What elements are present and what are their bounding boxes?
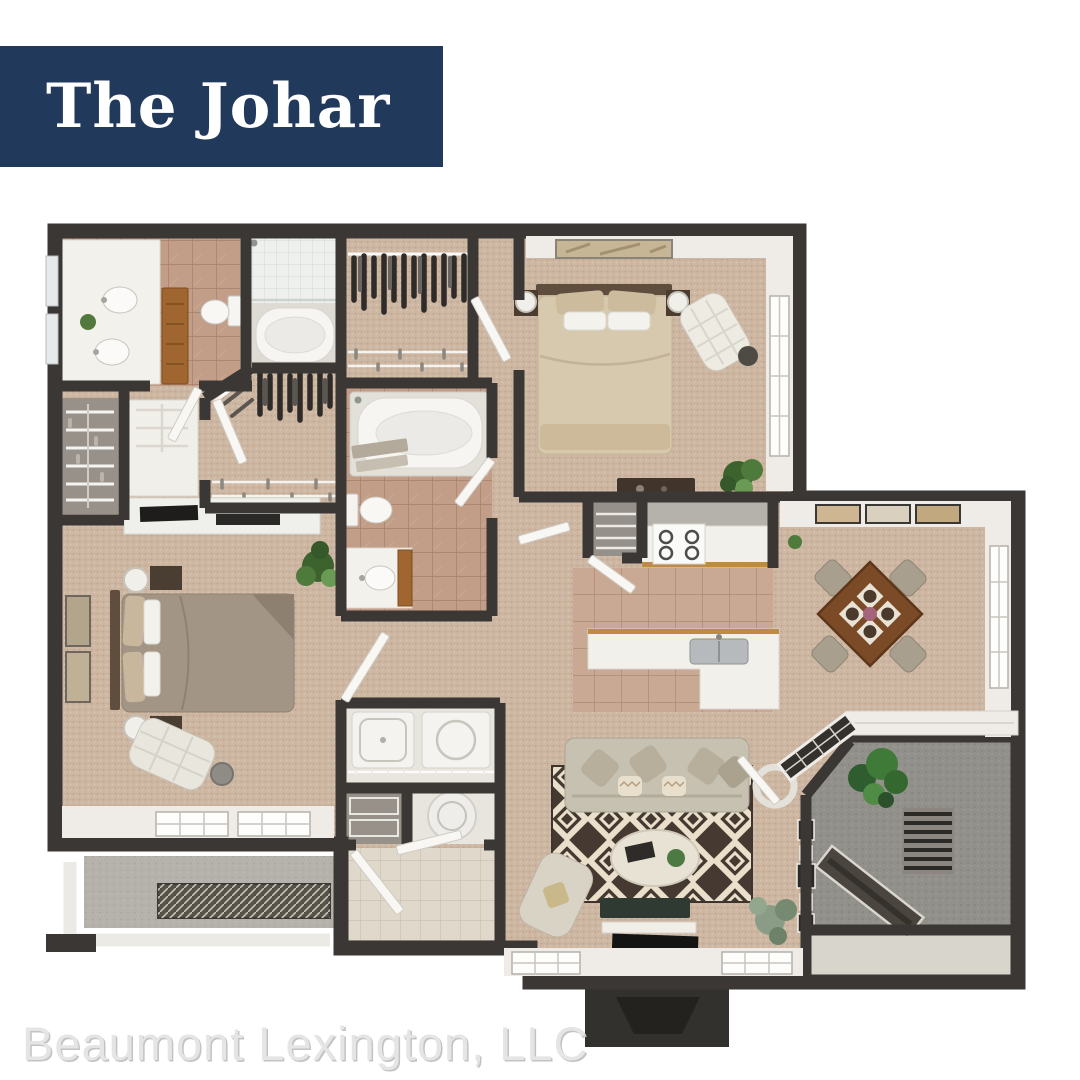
master-window — [238, 812, 310, 836]
upper-cabinets — [642, 500, 773, 526]
dining-wall-art — [816, 505, 860, 523]
counter-plant — [788, 535, 802, 549]
tv-equipment — [140, 505, 198, 522]
bath-mirror — [46, 314, 58, 364]
vanity-plant — [80, 314, 96, 330]
master-shower-floor — [246, 231, 341, 303]
pillow — [122, 595, 145, 646]
centerpiece-flowers — [863, 607, 877, 621]
dresser-decor — [661, 486, 667, 492]
stoop-corner-block — [46, 934, 96, 952]
tv-console — [602, 922, 696, 933]
pillow — [555, 290, 605, 315]
wall-art — [66, 596, 90, 646]
dining-area — [809, 557, 928, 674]
linen-closet-floor — [62, 398, 118, 514]
shower-head — [251, 240, 258, 247]
pillow-white — [608, 312, 650, 330]
toilet-bowl — [201, 300, 229, 324]
page-title: The Johar — [46, 71, 390, 142]
side-table — [738, 346, 758, 366]
wood-cabinet — [162, 288, 188, 384]
table-plant — [667, 849, 685, 867]
doormat-stripes — [158, 884, 330, 918]
foot-throw — [540, 424, 670, 450]
chevron-pillow — [618, 776, 642, 796]
faucet — [101, 297, 107, 303]
living-window — [722, 952, 792, 974]
lamp — [124, 568, 148, 592]
page: The Johar Beaumont Lexington, LLC — [0, 0, 1080, 1080]
stool — [211, 763, 233, 785]
sink-faucet — [716, 634, 722, 640]
pillow — [607, 290, 657, 315]
pillow-white — [144, 600, 160, 644]
toilet-tank — [228, 296, 241, 326]
title-banner: The Johar — [0, 46, 443, 167]
headboard — [110, 590, 120, 710]
faucet — [93, 349, 99, 355]
island-wood-edge — [588, 629, 779, 634]
pillow-white — [564, 312, 606, 330]
chevron-pillow — [662, 776, 686, 796]
coffee-table — [611, 830, 699, 886]
company-watermark: Beaumont Lexington, LLC — [22, 1016, 588, 1071]
master-window — [156, 812, 228, 836]
shower-head — [355, 397, 362, 404]
living-window — [512, 952, 580, 974]
tub-basin — [265, 317, 325, 353]
nightstand — [150, 566, 182, 590]
privacy-slat-screen — [902, 808, 954, 874]
headboard — [536, 284, 672, 295]
toilet-bowl — [360, 497, 392, 523]
dining-wall-art — [866, 505, 910, 523]
bath-mirror — [46, 256, 58, 306]
pillow-white — [144, 652, 160, 696]
wall-art — [66, 652, 90, 702]
sink-basin — [103, 287, 137, 313]
dining-wall-art — [916, 505, 960, 523]
faucet — [359, 575, 365, 581]
bedroom2-window — [770, 296, 789, 456]
stereo — [216, 514, 280, 525]
sink-basin — [95, 339, 129, 365]
toilet-tank — [346, 494, 358, 526]
wood-cabinet — [398, 550, 412, 606]
sink-basin — [365, 566, 395, 590]
pillow — [122, 651, 145, 702]
tv-stand-top — [600, 898, 690, 918]
washer-knob — [380, 737, 386, 743]
dining-window — [990, 546, 1008, 688]
